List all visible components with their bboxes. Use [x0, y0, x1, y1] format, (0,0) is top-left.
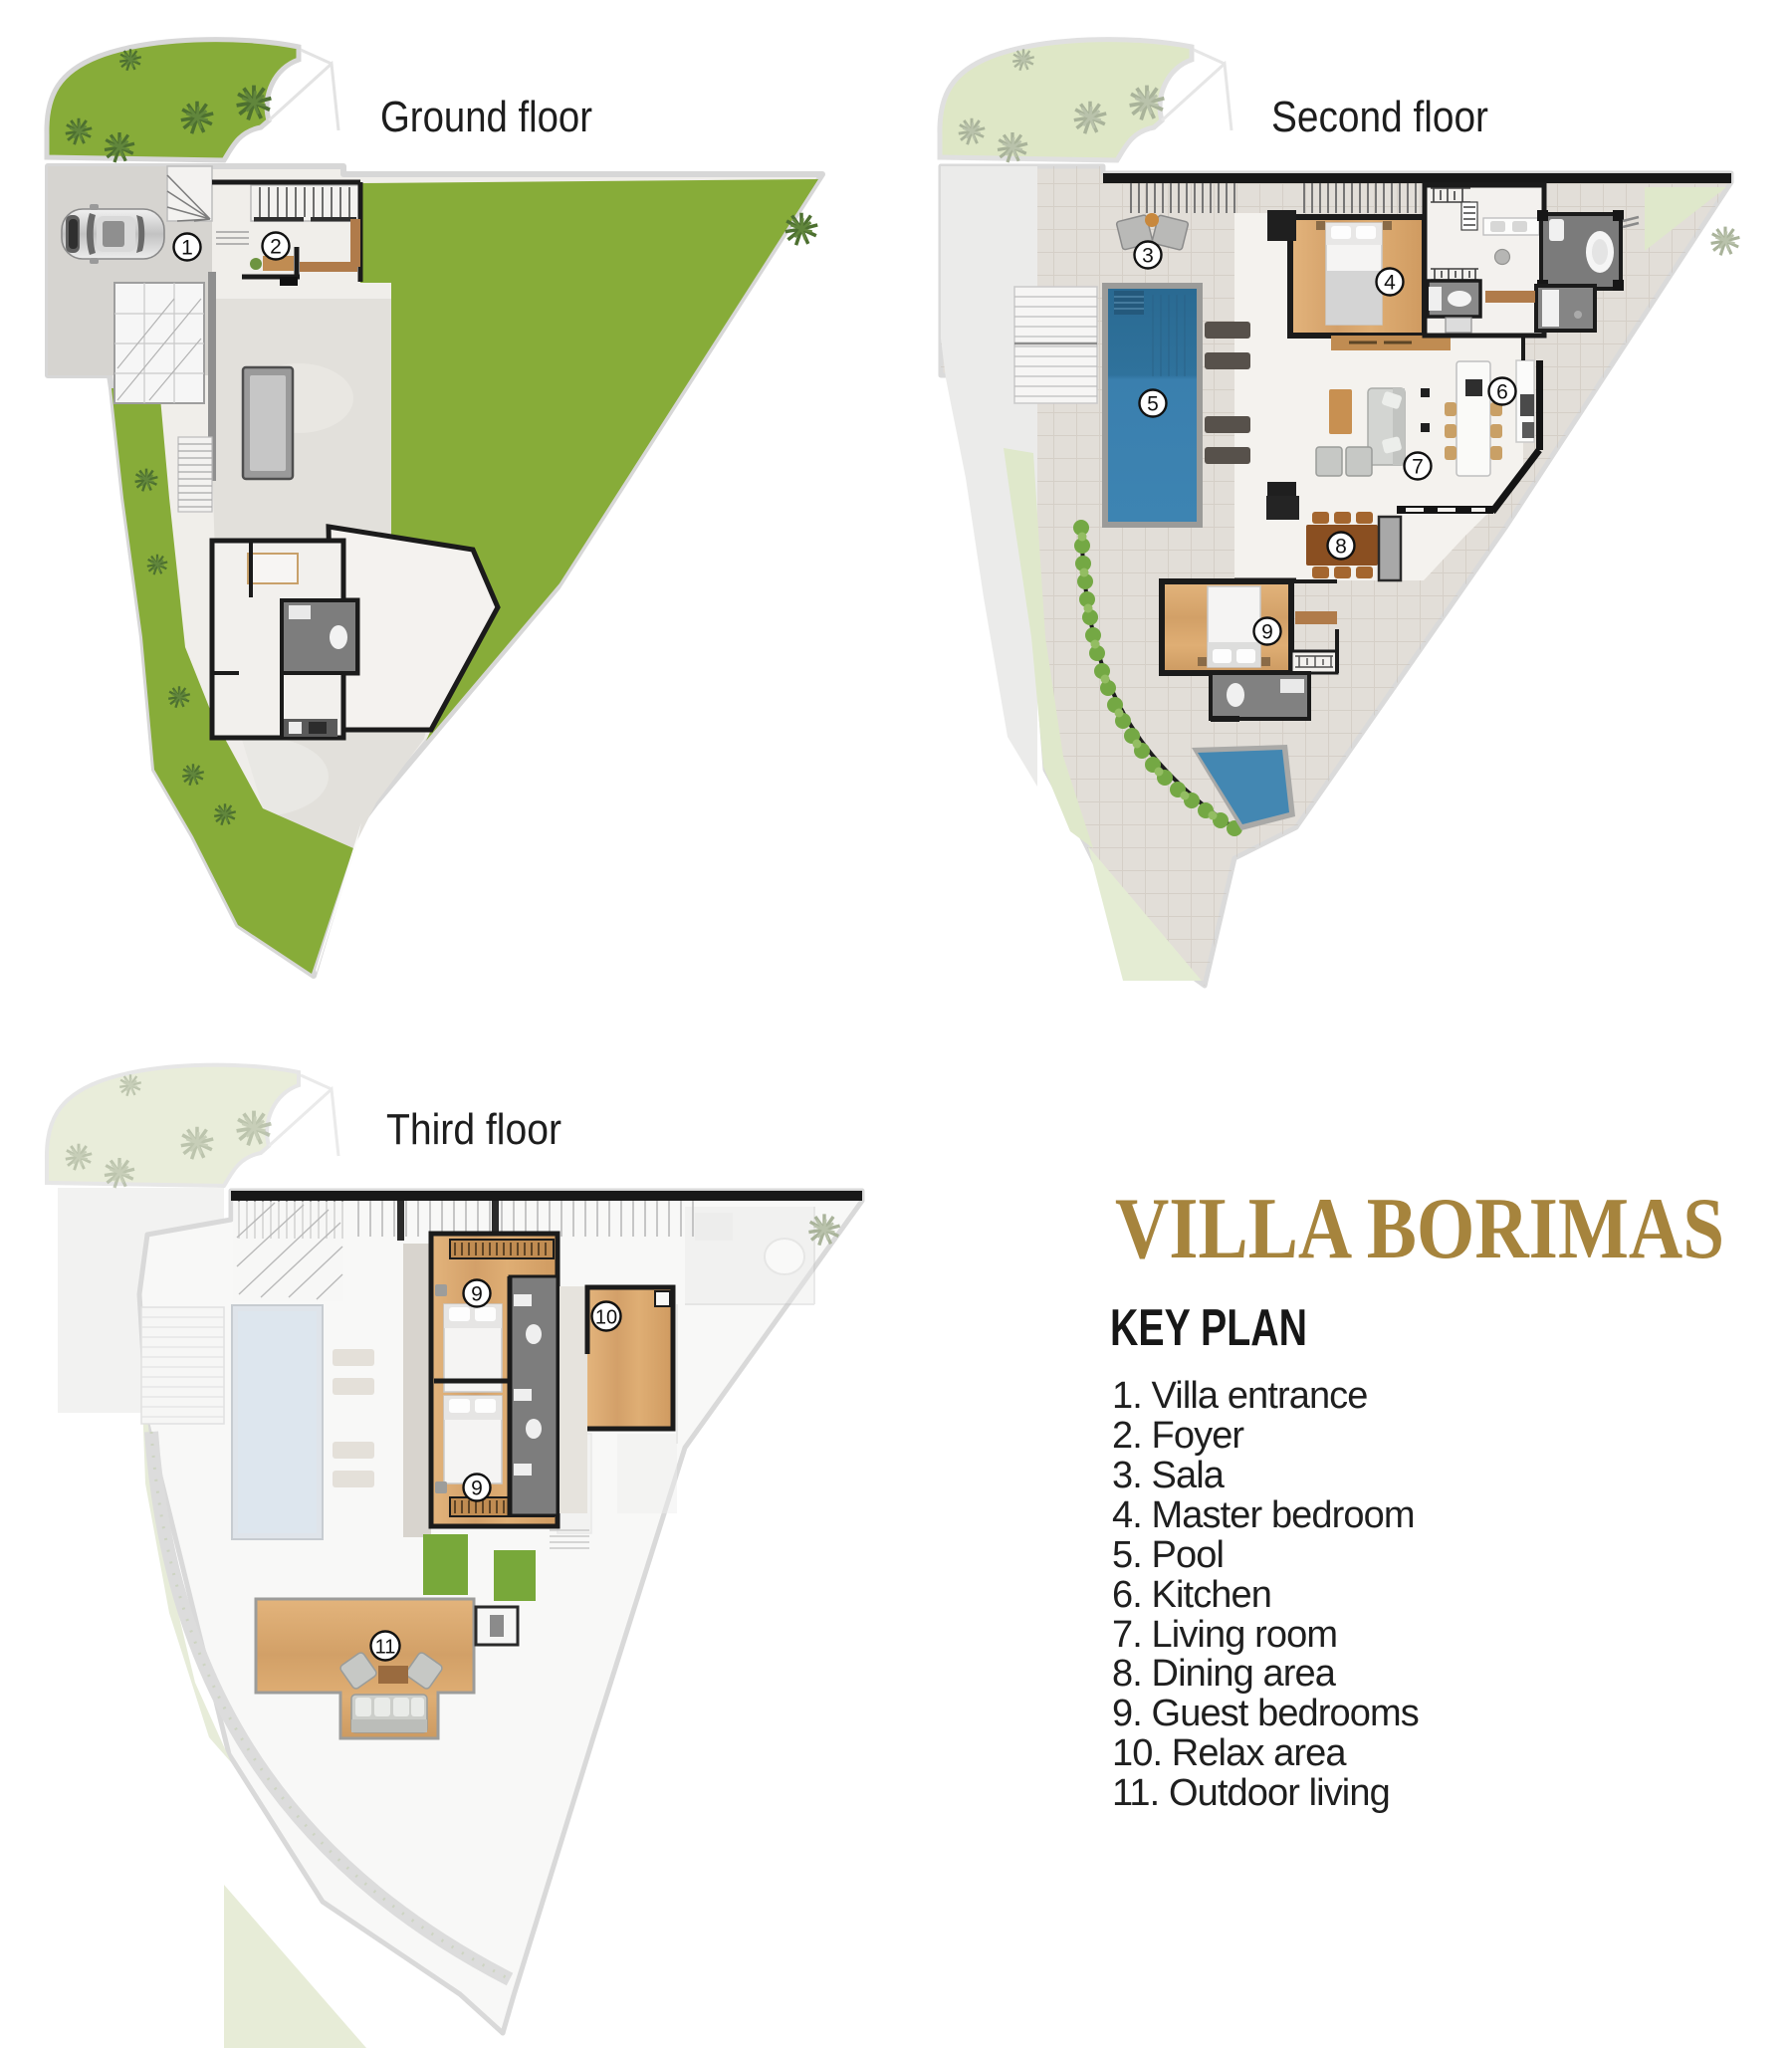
svg-text:9. Guest bedrooms: 9. Guest bedrooms: [1112, 1693, 1419, 1734]
svg-text:5: 5: [1147, 393, 1159, 416]
svg-text:11. Outdoor living: 11. Outdoor living: [1112, 1772, 1390, 1814]
svg-text:10: 10: [595, 1307, 617, 1329]
svg-text:Third floor: Third floor: [386, 1105, 561, 1154]
svg-text:1. Villa entrance: 1. Villa entrance: [1112, 1375, 1368, 1417]
svg-text:Ground floor: Ground floor: [380, 93, 592, 141]
svg-text:8. Dining area: 8. Dining area: [1112, 1653, 1337, 1695]
svg-text:9: 9: [1261, 621, 1273, 644]
svg-text:7: 7: [1412, 456, 1424, 479]
svg-text:VILLA BORIMAS: VILLA BORIMAS: [1115, 1181, 1724, 1277]
svg-text:2. Foyer: 2. Foyer: [1112, 1415, 1244, 1457]
svg-text:10. Relax area: 10. Relax area: [1112, 1732, 1347, 1774]
svg-text:3: 3: [1142, 245, 1154, 268]
svg-text:11: 11: [375, 1637, 396, 1659]
svg-text:7. Living room: 7. Living room: [1112, 1614, 1337, 1656]
svg-text:3. Sala: 3. Sala: [1112, 1455, 1226, 1496]
svg-text:1: 1: [181, 237, 193, 260]
svg-text:KEY PLAN: KEY PLAN: [1110, 1299, 1307, 1357]
svg-text:9: 9: [471, 1478, 483, 1500]
svg-text:9: 9: [471, 1283, 483, 1306]
svg-text:6. Kitchen: 6. Kitchen: [1112, 1574, 1271, 1616]
svg-text:4: 4: [1384, 272, 1396, 295]
svg-text:5. Pool: 5. Pool: [1112, 1534, 1224, 1576]
svg-text:Second floor: Second floor: [1271, 93, 1488, 141]
svg-text:4. Master bedroom: 4. Master bedroom: [1112, 1494, 1415, 1536]
svg-text:6: 6: [1496, 381, 1508, 404]
svg-text:2: 2: [270, 236, 282, 259]
svg-text:8: 8: [1335, 536, 1347, 559]
